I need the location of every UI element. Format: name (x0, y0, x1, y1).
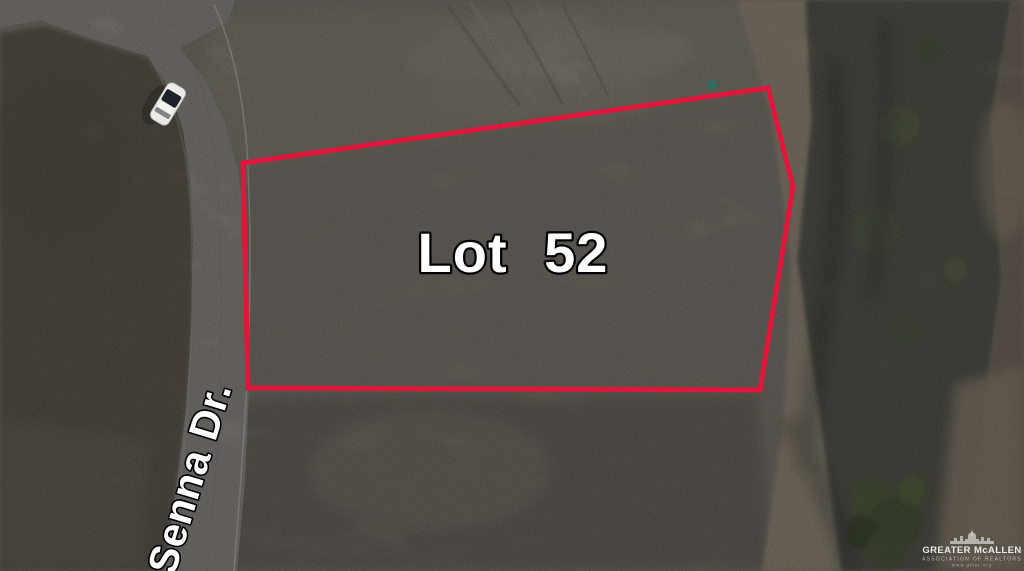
watermark-url: www.gmar.org (952, 563, 993, 568)
grain-light-overlay (0, 0, 1024, 571)
lot-label: Lot 52 (418, 221, 609, 284)
survey-marker (708, 81, 717, 89)
aerial-lot-photo: Lot 52 Senna Dr. GREATER McALLEN ASSOCIA… (0, 0, 1024, 571)
watermark-org: GREATER McALLEN (922, 545, 1021, 556)
aerial-photo-canvas: Lot 52 Senna Dr. GREATER McALLEN ASSOCIA… (0, 0, 1024, 571)
